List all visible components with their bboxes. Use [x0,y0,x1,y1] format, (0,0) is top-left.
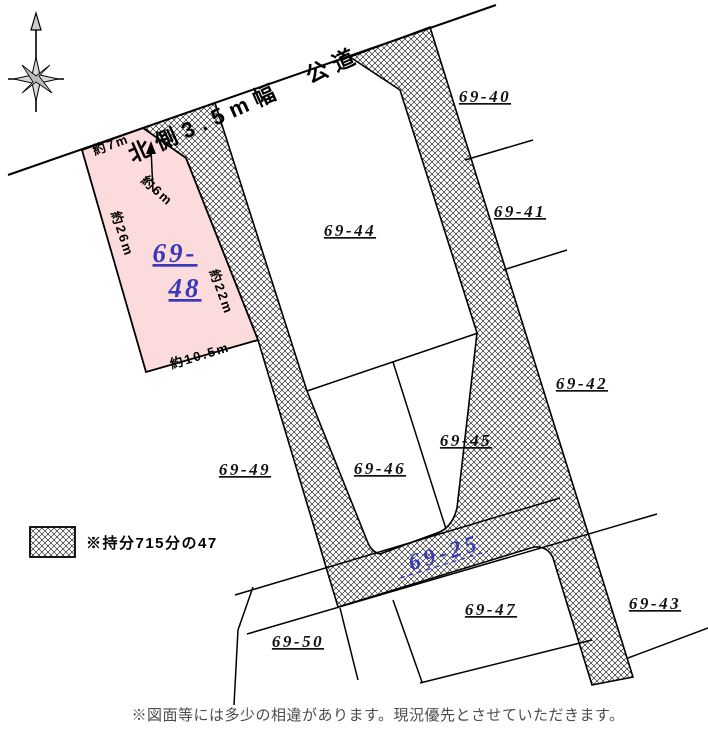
parcel-label-69-50: 69-50 [272,632,324,651]
parcel-label-69-48-line1: 69- [153,238,198,268]
north-arrow [31,13,41,30]
plot-map-page: 北側3.5m幅 公道 約7m 約6m 約26m 約22m 約10.5m 69- … [0,0,708,743]
parcel-label-69-40: 69-40 [459,87,511,106]
parcel-label-69-44: 69-44 [324,221,376,240]
parcel-label-69-43: 69-43 [629,594,681,613]
footer-note: ※図面等には多少の相違があります。現況優先とさせていただきます。 [131,706,624,724]
parcel-label-69-48-line2: 48 [168,273,202,303]
parcel-label-69-47: 69-47 [465,600,517,619]
parcel-label-69-41: 69-41 [494,202,546,221]
legend-swatch [30,527,75,557]
parcel-label-69-46: 69-46 [354,459,406,478]
plot-map: 北側3.5m幅 公道 約7m 約6m 約26m 約22m 約10.5m 69- … [0,0,708,743]
legend: ※持分715分の47 [30,527,218,557]
road-label: 北側3.5m幅 公道 [125,42,366,167]
compass [8,13,64,112]
legend-label: ※持分715分の47 [86,534,218,552]
parcel-label-69-42: 69-42 [556,374,608,393]
parcel-label-69-45: 69-45 [440,431,492,450]
parcel-label-69-49: 69-49 [219,460,271,479]
